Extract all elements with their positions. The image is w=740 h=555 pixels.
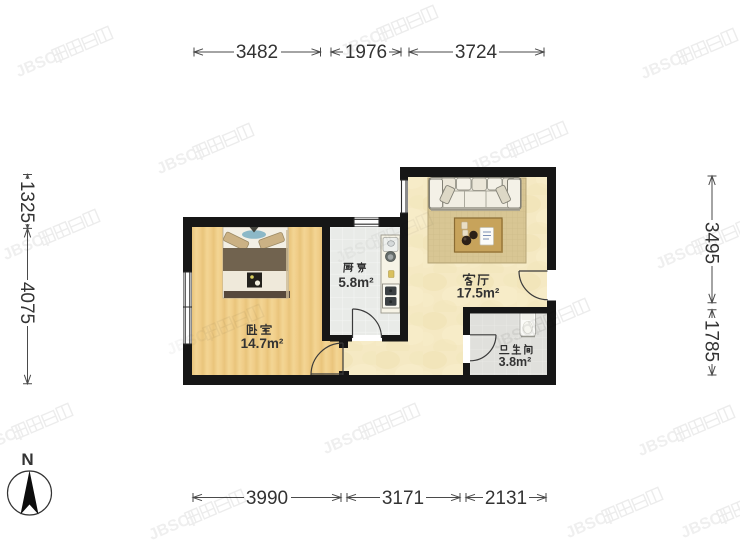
svg-text:1785: 1785: [701, 320, 722, 362]
svg-text:3.8m²: 3.8m²: [499, 355, 532, 369]
svg-text:3171: 3171: [382, 488, 424, 509]
svg-text:17.5m²: 17.5m²: [457, 286, 500, 301]
svg-text:1325: 1325: [16, 181, 37, 223]
svg-text:3482: 3482: [236, 42, 278, 63]
svg-text:14.7m²: 14.7m²: [241, 336, 284, 351]
svg-text:2131: 2131: [485, 488, 527, 509]
svg-text:3724: 3724: [455, 42, 498, 63]
svg-text:N: N: [21, 450, 33, 469]
svg-text:3990: 3990: [246, 488, 288, 509]
svg-text:4075: 4075: [16, 282, 37, 324]
svg-text:5.8m²: 5.8m²: [338, 275, 374, 290]
